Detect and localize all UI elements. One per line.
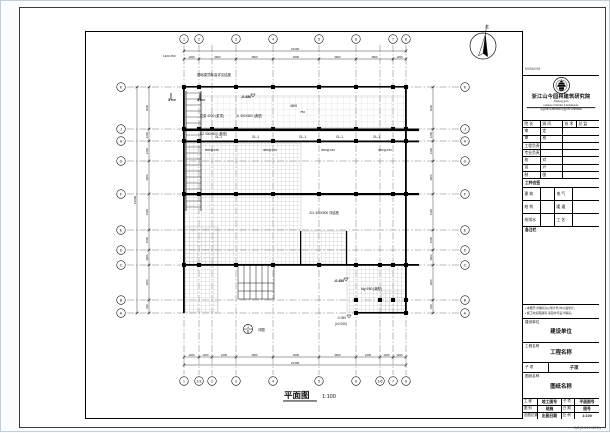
svg-text:-0.050: -0.050 (337, 316, 346, 320)
svg-text:3600: 3600 (429, 254, 433, 261)
svg-text:7: 7 (392, 37, 394, 41)
svg-text:B: B (247, 330, 249, 334)
svg-text:6000: 6000 (429, 104, 433, 111)
project-field: 工程名称 工程名称 (523, 343, 599, 363)
svg-text:1200: 1200 (396, 55, 403, 59)
svg-text:4500: 4500 (290, 104, 297, 108)
svg-text:6: 6 (355, 37, 357, 41)
trade-row: 建 筑 电 气 (523, 188, 599, 201)
trade-signoff-table: 工种会签 建 筑 电 气 结 构 暖 通 给排水 工 艺 (523, 179, 599, 227)
company-seal-icon (553, 77, 570, 94)
svg-text:750: 750 (300, 110, 305, 114)
svg-text:1: 1 (247, 325, 249, 329)
subitem-field: 子 项 子项 (523, 363, 599, 373)
stamp-text: M09AV98 (525, 68, 540, 72)
title-block: M09AV98 浙江山今园林建筑研究院 Zhejiang gush Instit… (522, 31, 599, 419)
trade-row: 给排水 工 艺 (523, 214, 599, 226)
personnel-table: 院 长 顾 问 技 术 总 监 审 定 审 核 工程负责 专业负责 校 对 (523, 121, 599, 179)
svg-text:2100: 2100 (429, 147, 433, 154)
svg-text:Mg Φ50 (典型): Mg Φ50 (典型) (361, 286, 382, 291)
svg-text:3600: 3600 (251, 353, 258, 357)
svg-text:4500: 4500 (293, 353, 300, 357)
svg-text:1200: 1200 (429, 131, 433, 138)
svg-text:GL-1: GL-1 (215, 135, 222, 139)
svg-text:KZ 300X500 (典型): KZ 300X500 (典型) (200, 131, 227, 136)
svg-text:2400: 2400 (221, 353, 228, 357)
svg-text:6000: 6000 (145, 104, 149, 111)
sheet-size-label: A2(594X420) (574, 425, 601, 430)
svg-text:21300: 21300 (291, 361, 300, 365)
svg-text:1500: 1500 (145, 236, 149, 243)
svg-text:3600: 3600 (334, 55, 341, 59)
personnel-row: 审 核 (523, 136, 599, 143)
svg-text:1200: 1200 (188, 353, 195, 357)
svg-text:2400: 2400 (365, 353, 372, 357)
drawing-name-value: 图纸名称 (523, 384, 599, 390)
svg-text:详图: 详图 (258, 327, 265, 332)
svg-text:1200: 1200 (429, 279, 433, 286)
svg-text:JCL 300X500 详结施: JCL 300X500 详结施 (309, 210, 339, 215)
svg-text:3600: 3600 (334, 353, 341, 357)
svg-text:1200: 1200 (145, 131, 149, 138)
svg-text:3300: 3300 (429, 174, 433, 181)
svg-text:3: 3 (197, 97, 200, 102)
svg-text:Φ50@150: Φ50@150 (205, 148, 219, 152)
drawing-number-grid: 工 程 竣工图号 子 项 平面图号 图 别 结施 日 期 图号 出图记录 出图日… (523, 399, 599, 419)
cell-advisor: 顾 问 (541, 121, 563, 127)
svg-text:4: 4 (272, 37, 274, 41)
svg-text:3600: 3600 (145, 254, 149, 261)
cell-tech: 技 术 (563, 121, 577, 127)
svg-text:GL-1: GL-1 (336, 135, 343, 139)
svg-text:Φ50@150: Φ50@150 (321, 148, 335, 152)
company-name-en2: Institute of Garden & Architecture (529, 104, 594, 107)
svg-text:4: 4 (272, 379, 274, 383)
svg-text:-0.450: -0.450 (241, 95, 251, 99)
stamp-area: M09AV98 (523, 31, 599, 76)
svg-text:C: C (464, 263, 467, 267)
remarks-header: 备注栏 (525, 228, 536, 232)
svg-text:600: 600 (145, 304, 149, 309)
svg-text:21300: 21300 (291, 47, 300, 51)
personnel-row: 工程负责 (523, 143, 599, 150)
floor-plan-drawing: 1234567811/1234561/678KKJJHHGGFFEEDDCCBB… (1, 1, 610, 433)
company-block: 浙江山今园林建筑研究院 Zhejiang gush Institute of G… (523, 76, 599, 121)
svg-text:3600: 3600 (371, 55, 378, 59)
svg-text:J: J (464, 127, 466, 131)
svg-text:H: H (464, 139, 467, 143)
svg-text:3300: 3300 (145, 174, 149, 181)
detail-callout: 1B (243, 324, 252, 334)
subitem-value: 子项 (549, 363, 599, 372)
drawing-name-field: 图纸名称 图纸名称 (523, 373, 599, 399)
personnel-row: 校 对 (523, 157, 599, 164)
svg-text:8: 8 (405, 379, 407, 383)
company-phone: 电话:0571-8053500 传真:0571-8053530 (527, 108, 595, 112)
svg-text:GL-1: GL-1 (252, 135, 259, 139)
remarks-box: 备注栏 (523, 227, 599, 305)
svg-text:3600: 3600 (214, 55, 221, 59)
svg-text:(±0.000): (±0.000) (335, 322, 347, 326)
owner-field: 建设单位 建设单位 (523, 319, 599, 343)
svg-text:5: 5 (318, 37, 320, 41)
personnel-row: 院 长 顾 问 技 术 总 监 (523, 121, 599, 128)
svg-text:1200: 1200 (383, 353, 390, 357)
svg-text:Φ50@150: Φ50@150 (263, 148, 277, 152)
personnel-row: 审 定 (523, 128, 599, 135)
svg-text:8: 8 (405, 37, 407, 41)
svg-text:平面图: 平面图 (284, 390, 310, 400)
svg-text:4500: 4500 (293, 55, 300, 59)
svg-text:7: 7 (392, 379, 394, 383)
svg-text:北: 北 (485, 23, 489, 29)
svg-text:JL 300X500 (典型): JL 300X500 (典型) (236, 113, 262, 118)
svg-text:GL-1: GL-1 (373, 135, 380, 139)
north-compass: 北 (470, 23, 496, 59)
svg-text:1200 450: 1200 450 (163, 54, 176, 58)
svg-text:D: D (464, 248, 467, 252)
cell-chief: 总 监 (577, 121, 599, 127)
personnel-row: 设 计 (523, 165, 599, 172)
svg-text:21600: 21600 (133, 195, 137, 204)
svg-text:1200: 1200 (396, 353, 403, 357)
svg-text:Φ50@150: Φ50@150 (378, 148, 392, 152)
svg-text:2: 2 (211, 379, 213, 383)
svg-text:J: J (120, 127, 122, 131)
note-line: ▪ 施工时如有疑问,请及时与设计联系。 (525, 311, 598, 316)
svg-text:G: G (464, 159, 467, 163)
svg-text:3600: 3600 (251, 55, 258, 59)
owner-value: 建设单位 (523, 329, 599, 335)
personnel-row: 专业负责 (523, 150, 599, 157)
svg-text:基础梁顶标高详见结施: 基础梁顶标高详见结施 (197, 72, 232, 77)
svg-text:2: 2 (198, 37, 200, 41)
svg-text:3: 3 (235, 379, 237, 383)
trade-signoff-header: 工种会签 (523, 179, 599, 188)
svg-text:6: 6 (355, 379, 357, 383)
svg-text:3: 3 (168, 97, 171, 102)
cell-director: 院 长 (523, 121, 541, 127)
svg-text:2100: 2100 (145, 147, 149, 154)
trade-row: 结 构 暖 通 (523, 201, 599, 214)
svg-text:3: 3 (235, 37, 237, 41)
svg-text:600: 600 (429, 304, 433, 309)
note-bullets: ▪ 本图尺寸除标高以米计外,均以毫米计。 ▪ 施工时如有疑问,请及时与设计联系。 (523, 305, 599, 319)
svg-text:1/6: 1/6 (378, 379, 383, 383)
svg-text:1:100: 1:100 (322, 394, 336, 400)
personnel-row: 制 图 (523, 172, 599, 178)
svg-text:1: 1 (183, 379, 185, 383)
svg-text:GL-1: GL-1 (299, 135, 306, 139)
plan-title: 平面图1:100 (283, 390, 336, 401)
cad-sheet-page: { "plan": { "title": "平面图", "scale": "1:… (0, 0, 610, 432)
svg-text:1200: 1200 (145, 279, 149, 286)
svg-text:2100: 2100 (429, 208, 433, 215)
svg-text:H: H (120, 139, 123, 143)
svg-text:C: C (120, 263, 123, 267)
svg-text:1200: 1200 (202, 353, 209, 357)
svg-text:-0.450: -0.450 (334, 279, 344, 283)
svg-text:1200: 1200 (188, 55, 195, 59)
svg-text:2100: 2100 (145, 208, 149, 215)
project-value: 工程名称 (523, 350, 599, 356)
svg-text:拉梁 4200 (梁顶): 拉梁 4200 (梁顶) (200, 113, 224, 118)
svg-text:1: 1 (183, 37, 185, 41)
svg-text:G: G (120, 159, 123, 163)
svg-text:D: D (120, 248, 123, 252)
svg-text:1500: 1500 (429, 236, 433, 243)
svg-text:1/1: 1/1 (197, 379, 202, 383)
svg-text:5: 5 (318, 379, 320, 383)
